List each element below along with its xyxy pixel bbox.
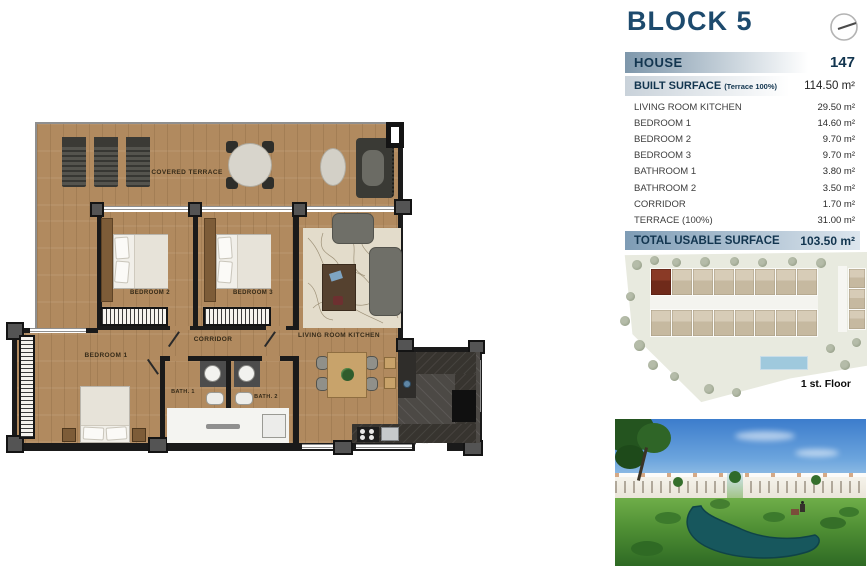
bush	[839, 507, 859, 517]
golf-cart	[791, 509, 799, 515]
site-units-top-row	[650, 268, 818, 296]
table-row: CORRIDOR1.70 m²	[625, 196, 860, 212]
pillow	[217, 260, 233, 283]
bath2-toilet	[235, 392, 253, 405]
row-label: LIVING ROOM KITCHEN	[634, 102, 742, 113]
shower-bar	[206, 424, 240, 429]
terrace-floor	[37, 124, 403, 206]
terrace-sofa-cushion	[362, 150, 384, 186]
kitchen-peninsula	[398, 352, 416, 398]
site-unit	[651, 310, 671, 336]
bush	[763, 512, 785, 522]
tree	[632, 260, 642, 270]
nightstand	[62, 428, 76, 442]
site-unit	[672, 310, 692, 336]
wall	[160, 361, 165, 443]
site-unit	[672, 269, 692, 295]
peninsula-sink	[403, 380, 411, 388]
wall-post	[188, 202, 202, 217]
pillow	[114, 237, 130, 260]
tree	[840, 360, 850, 370]
label-bath2: BATH. 2	[254, 394, 278, 400]
wall	[293, 356, 299, 444]
site-unit	[735, 310, 755, 336]
bush	[820, 517, 846, 529]
house-number: 147	[830, 54, 855, 71]
window	[356, 444, 412, 449]
bush	[631, 541, 663, 556]
bed-headboard	[204, 218, 216, 302]
armchair	[332, 213, 374, 244]
label-covered-terrace: COVERED TERRACE	[151, 169, 222, 176]
row-label: BEDROOM 3	[634, 150, 691, 161]
pillow	[106, 426, 128, 440]
tree	[634, 340, 645, 351]
tree	[670, 372, 679, 381]
stove	[357, 427, 379, 442]
burner	[360, 435, 365, 440]
compass-icon	[825, 8, 863, 46]
site-unit	[693, 269, 713, 295]
row-value: 9.70 m²	[823, 134, 855, 145]
site-units-right-column	[848, 268, 866, 330]
row-label: BATHROOM 2	[634, 183, 696, 194]
site-unit	[755, 269, 775, 295]
terrace-rail-top	[36, 122, 403, 124]
table-row: BEDROOM 29.70 m²	[625, 131, 860, 147]
bath1-toilet	[206, 392, 224, 405]
bed-headboard	[101, 218, 113, 302]
label-bedroom1: BEDROOM 1	[85, 352, 128, 359]
wall-post	[394, 199, 412, 215]
wall	[193, 210, 198, 328]
label-living: LIVING ROOM KITCHEN	[298, 332, 380, 339]
bedroom1-wardrobe	[19, 335, 35, 439]
sun-lounger	[126, 137, 150, 187]
sun-lounger	[62, 137, 86, 187]
site-unit	[849, 310, 865, 329]
row-label: BEDROOM 2	[634, 134, 691, 145]
bath1-sink	[204, 365, 221, 382]
surface-rows: LIVING ROOM KITCHEN29.50 m² BEDROOM 114.…	[625, 99, 860, 229]
site-unit	[797, 310, 817, 336]
row-value: 9.70 m²	[823, 150, 855, 161]
entry-door-opening	[415, 443, 447, 451]
page: COVERED TERRACE	[0, 0, 867, 569]
terrace-rail-left	[35, 122, 37, 330]
wall-post	[396, 338, 414, 352]
row-value: 1.70 m²	[823, 199, 855, 210]
pillow	[114, 260, 130, 283]
site-unit	[849, 269, 865, 288]
wall-post	[90, 202, 104, 217]
table-row: TERRACE (100%)31.00 m²	[625, 212, 860, 228]
kitchen-stool	[384, 377, 396, 389]
row-value: 3.50 m²	[823, 183, 855, 194]
site-unit	[735, 269, 755, 295]
row-label: CORRIDOR	[634, 199, 686, 210]
burner	[369, 435, 374, 440]
pillow	[217, 237, 233, 260]
total-surface-bar: TOTAL USABLE SURFACE 103.50 m²	[625, 231, 860, 250]
kitchen-sink	[381, 427, 399, 441]
kitchen-counter-top	[416, 352, 476, 374]
nightstand	[132, 428, 146, 442]
total-value: 103.50 m²	[800, 234, 855, 248]
built-surface-note: (Terrace 100%)	[724, 82, 777, 91]
house-bar: HOUSE 147	[625, 52, 860, 73]
site-pool	[760, 356, 808, 370]
site-unit	[714, 310, 734, 336]
site-plan: 1 st. Floor	[612, 252, 867, 410]
tree	[700, 257, 710, 267]
window	[104, 206, 190, 212]
table-row: BATHROOM 23.50 m²	[625, 180, 860, 196]
site-road-middle	[650, 296, 818, 309]
tree	[626, 292, 635, 301]
pillow	[83, 426, 105, 440]
tree	[730, 257, 739, 266]
floor-caption: 1 st. Floor	[801, 378, 851, 390]
building-render-photo	[615, 419, 866, 566]
table-row: BEDROOM 114.60 m²	[625, 115, 860, 131]
burner	[369, 429, 374, 434]
bush	[710, 499, 730, 509]
house-label: HOUSE	[634, 55, 683, 70]
built-surface-label: BUILT SURFACE	[634, 80, 721, 92]
tree	[732, 388, 741, 397]
tree	[758, 258, 767, 267]
tree	[826, 344, 835, 353]
site-unit	[776, 310, 796, 336]
tree	[672, 258, 681, 267]
bed-blanket	[134, 235, 168, 288]
sofa	[369, 247, 402, 316]
bedroom2-wardrobe	[100, 307, 168, 326]
row-label: BATHROOM 1	[634, 166, 696, 177]
wall	[12, 333, 17, 444]
built-surface-value: 114.50 m²	[804, 80, 855, 92]
tree	[620, 316, 630, 326]
window	[302, 444, 334, 449]
label-bedroom3: BEDROOM 3	[233, 290, 273, 296]
window	[307, 206, 395, 212]
wall-post	[333, 440, 353, 455]
site-road-vertical	[838, 266, 847, 332]
bedroom3-wardrobe	[203, 307, 271, 326]
label-bedroom2: BEDROOM 2	[130, 290, 170, 296]
site-unit	[849, 289, 865, 308]
bath2-shower-tray	[262, 414, 286, 438]
tree	[852, 338, 861, 347]
row-label: TERRACE (100%)	[634, 215, 713, 226]
total-label: TOTAL USABLE SURFACE	[634, 235, 780, 247]
terrace-round-table	[228, 143, 272, 187]
bed-blanket	[237, 235, 271, 288]
door-opening	[170, 326, 190, 330]
label-bath1: BATH. 1	[171, 389, 195, 395]
row-value: 3.80 m²	[823, 166, 855, 177]
table-plant	[341, 368, 354, 381]
site-units-bottom-row	[650, 309, 818, 337]
window	[200, 206, 294, 212]
table-row: LIVING ROOM KITCHEN29.50 m²	[625, 99, 860, 115]
door-opening	[170, 356, 188, 361]
bed-blanket	[81, 387, 129, 426]
wall-post	[292, 202, 307, 217]
wall-post	[148, 437, 168, 453]
site-unit	[797, 269, 817, 295]
tree	[816, 258, 826, 268]
sun-lounger	[94, 137, 118, 187]
bush	[655, 512, 681, 524]
row-value: 14.60 m²	[818, 118, 856, 129]
table-row: BATHROOM 13.80 m²	[625, 164, 860, 180]
row-value: 29.50 m²	[818, 102, 856, 113]
table-deco	[333, 296, 343, 305]
site-unit	[755, 310, 775, 336]
table-row: BEDROOM 39.70 m²	[625, 148, 860, 164]
door-opening	[266, 326, 286, 330]
tree	[650, 256, 659, 265]
window	[30, 328, 86, 333]
built-surface-bar: BUILT SURFACE (Terrace 100%) 114.50 m²	[625, 76, 860, 96]
bath2-sink	[238, 365, 255, 382]
tree-foliage	[637, 423, 671, 453]
appliance	[452, 390, 476, 422]
burner	[360, 429, 365, 434]
tree	[648, 360, 658, 370]
label-corridor: CORRIDOR	[194, 336, 233, 343]
terrace-side-floor	[37, 206, 97, 330]
door-opening	[262, 356, 280, 361]
row-value: 31.00 m²	[818, 215, 856, 226]
row-label: BEDROOM 1	[634, 118, 691, 129]
site-unit	[776, 269, 796, 295]
wall	[293, 210, 299, 330]
site-unit	[714, 269, 734, 295]
kitchen-stool	[384, 357, 396, 369]
site-unit-highlighted	[651, 269, 671, 295]
floor-plan: COVERED TERRACE	[0, 0, 500, 569]
golfer-body	[800, 504, 805, 512]
tree	[704, 384, 714, 394]
block-title: BLOCK 5	[627, 6, 753, 37]
wall-post	[386, 122, 404, 148]
tree	[788, 257, 797, 266]
site-unit	[693, 310, 713, 336]
terrace-pouf	[320, 148, 346, 186]
